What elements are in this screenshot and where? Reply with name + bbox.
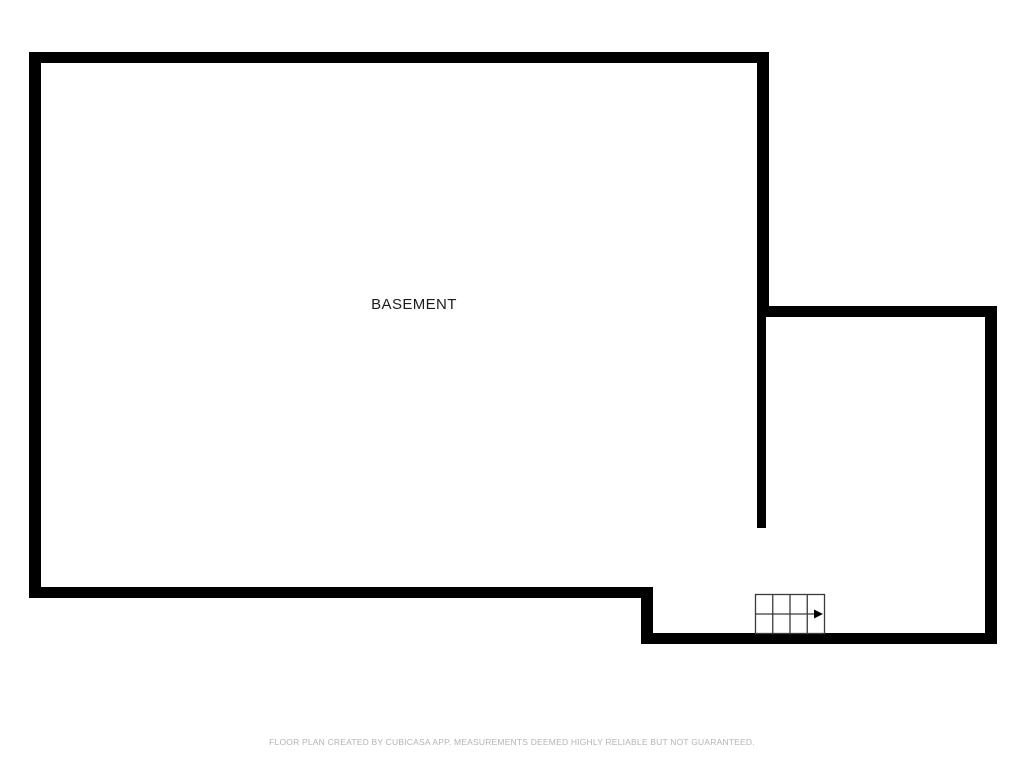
staircase-direction-arrow-icon <box>814 610 823 619</box>
room-label-basement: BASEMENT <box>314 295 514 315</box>
wall-top <box>29 52 769 63</box>
floorplan-canvas <box>0 0 1024 768</box>
wall-bottom-lower <box>641 633 997 644</box>
floorplan-page: BASEMENT FLOOR PLAN CREATED BY CUBICASA … <box>0 0 1024 768</box>
walls <box>29 52 997 644</box>
staircase-symbol <box>756 595 825 634</box>
wall-extension-top <box>757 306 997 317</box>
wall-right-upper <box>757 52 769 317</box>
wall-bottom-main <box>29 587 653 598</box>
wall-extension-right <box>985 306 997 644</box>
wall-left <box>29 52 41 598</box>
wall-interior <box>757 317 766 528</box>
footer-disclaimer: FLOOR PLAN CREATED BY CUBICASA APP. MEAS… <box>0 736 1024 748</box>
